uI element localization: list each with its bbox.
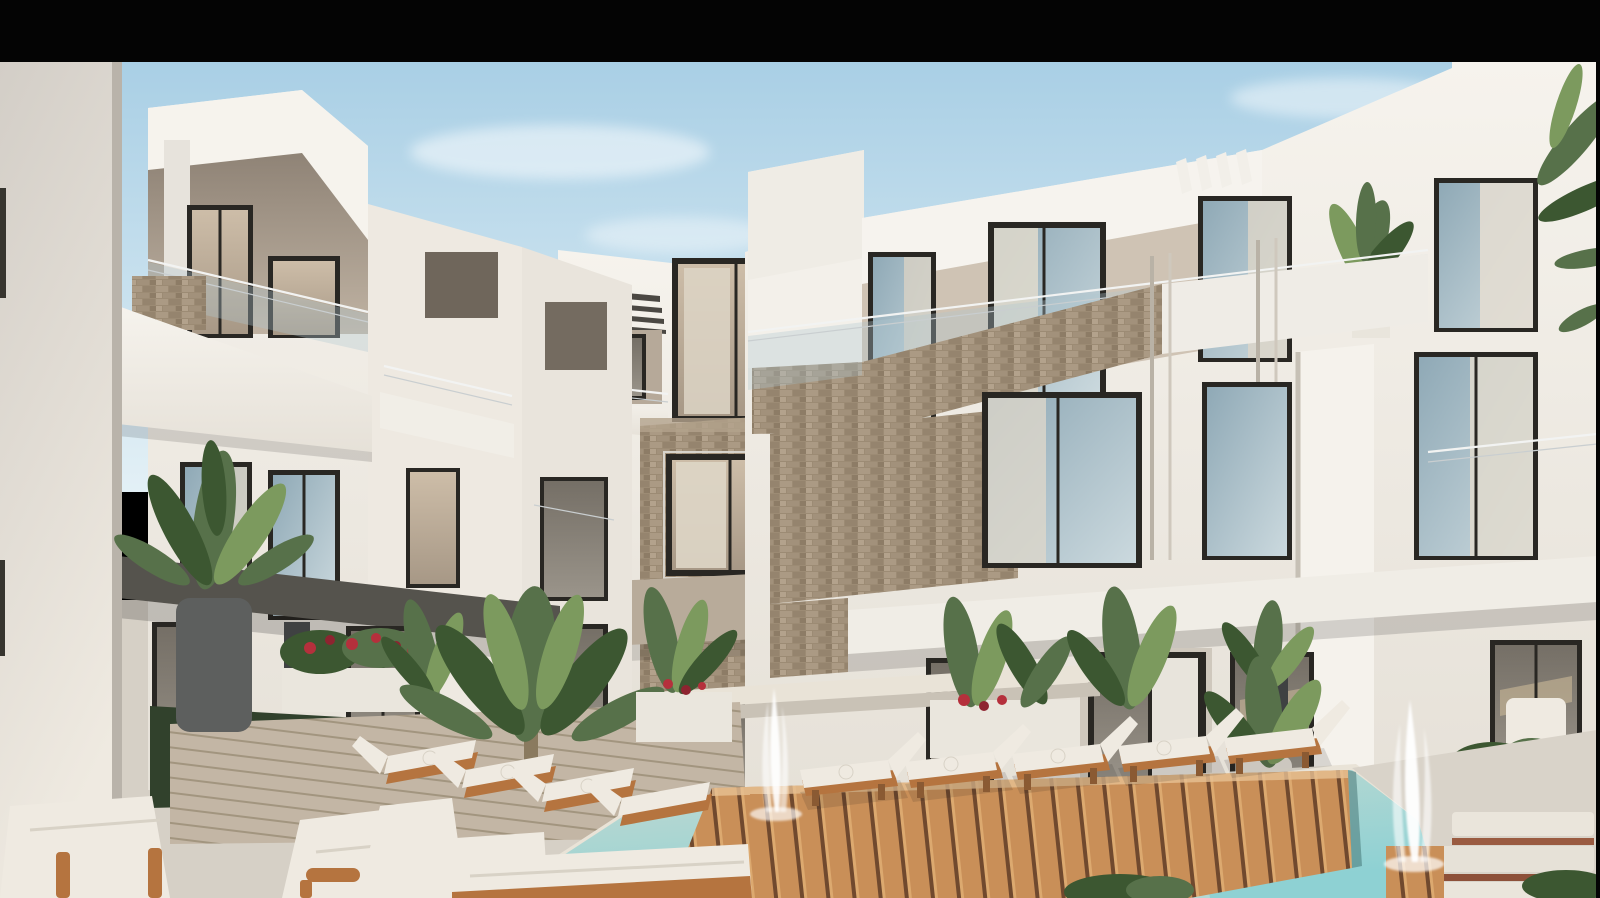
window xyxy=(534,477,614,601)
sun-lounger xyxy=(0,796,170,898)
window xyxy=(1434,178,1538,332)
stone-pier-lower xyxy=(770,598,848,678)
letterbox-right-strip xyxy=(1596,0,1600,898)
dark-pot xyxy=(176,598,252,732)
lower-stone-block xyxy=(770,408,1018,604)
bay3-recess-window xyxy=(545,302,607,370)
window-sliver xyxy=(0,188,6,298)
left-foreground-wall xyxy=(0,62,122,898)
window xyxy=(1202,382,1292,560)
window xyxy=(406,468,460,588)
letterboxed-render xyxy=(0,0,1600,898)
window xyxy=(1414,352,1538,560)
cloud xyxy=(585,217,775,253)
scene-svg xyxy=(0,0,1600,898)
cloud xyxy=(410,125,710,179)
letterbox-top-bar xyxy=(0,0,1600,62)
bay2-recess-window xyxy=(425,252,498,318)
window-sliver xyxy=(0,560,5,656)
projecting-box-soffit xyxy=(748,150,864,280)
window xyxy=(982,392,1142,568)
wall-corner-shade xyxy=(112,62,122,898)
white-planter xyxy=(636,692,732,742)
